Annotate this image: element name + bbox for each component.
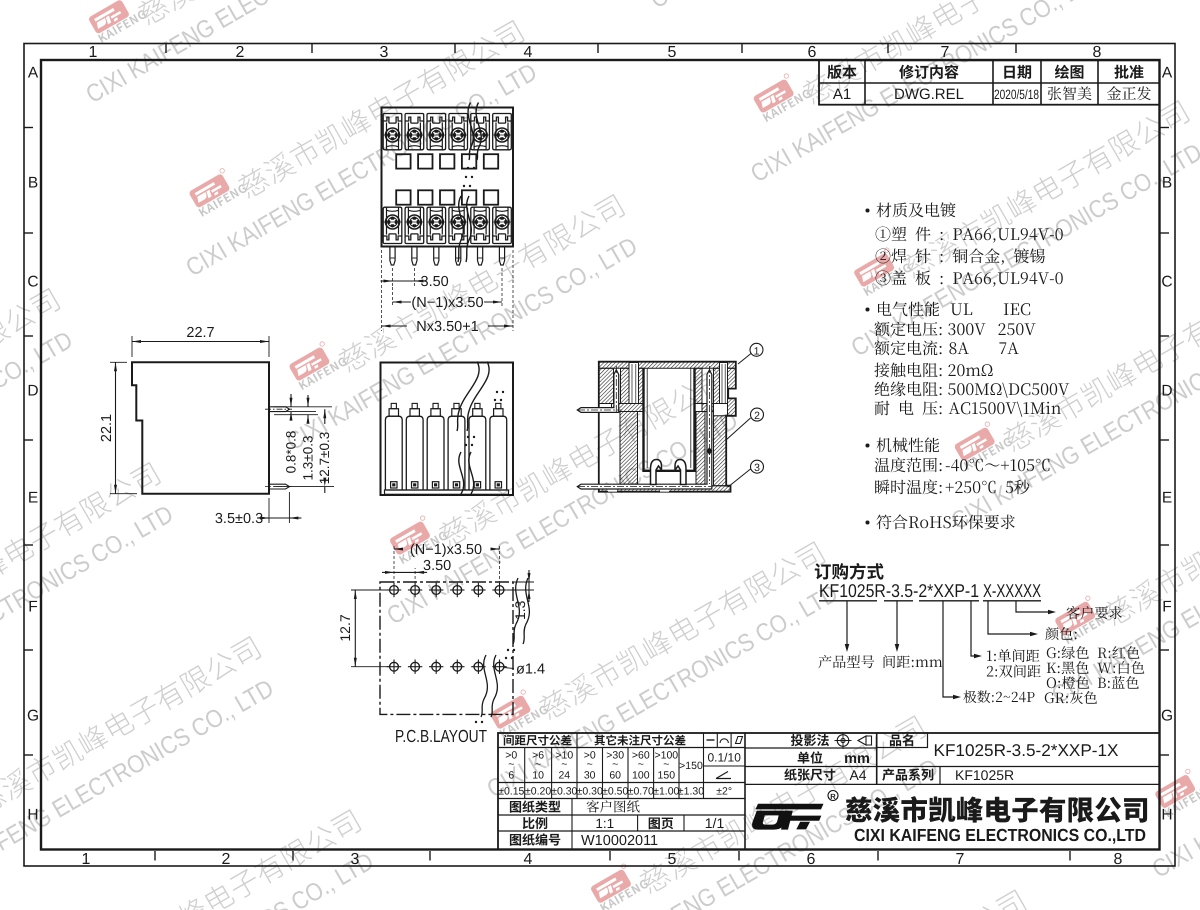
- svg-text:100: 100: [632, 770, 650, 782]
- svg-text:>150: >150: [679, 760, 703, 772]
- svg-text:2: 2: [754, 410, 760, 422]
- svg-text:4: 4: [524, 44, 533, 61]
- svg-text:C: C: [1161, 274, 1172, 291]
- svg-text:E: E: [28, 490, 38, 507]
- svg-text:150: 150: [658, 770, 676, 782]
- svg-text:22.7: 22.7: [186, 325, 214, 341]
- svg-text:F: F: [1162, 599, 1171, 616]
- svg-text:1.3: 1.3: [512, 600, 528, 620]
- svg-text:R: R: [830, 792, 836, 801]
- svg-text:6: 6: [808, 44, 817, 61]
- svg-text:±0.20: ±0.20: [525, 786, 551, 798]
- svg-text:12.7±0.3: 12.7±0.3: [317, 432, 332, 484]
- svg-text:W10002011: W10002011: [581, 833, 658, 849]
- svg-text:A1: A1: [833, 86, 851, 103]
- svg-text:8: 8: [1093, 44, 1102, 61]
- svg-text:4: 4: [524, 851, 533, 868]
- svg-text:KF1025R-3.5-2*XXP-1X: KF1025R-3.5-2*XXP-1X: [934, 741, 1119, 760]
- svg-text:mm: mm: [844, 751, 870, 767]
- svg-text:7: 7: [956, 851, 965, 868]
- svg-text:A: A: [1162, 65, 1173, 82]
- svg-text:ø1.4: ø1.4: [516, 662, 545, 678]
- svg-text:0.1/10: 0.1/10: [708, 751, 742, 765]
- svg-text:8: 8: [1114, 851, 1123, 868]
- svg-text:D: D: [1161, 383, 1172, 400]
- svg-text:P.C.B.LAYOUT: P.C.B.LAYOUT: [395, 726, 487, 746]
- svg-text:6: 6: [508, 770, 514, 782]
- svg-text:±0.50: ±0.50: [602, 786, 628, 798]
- svg-text:E: E: [1162, 490, 1172, 507]
- svg-text:F: F: [28, 599, 37, 616]
- svg-text:DWG.REL: DWG.REL: [894, 86, 964, 103]
- svg-text:1:1: 1:1: [595, 816, 614, 831]
- svg-text:H: H: [1161, 807, 1172, 824]
- svg-text:(N−1)x3.50: (N−1)x3.50: [411, 295, 483, 311]
- svg-text:±0.30: ±0.30: [577, 786, 603, 798]
- svg-text:D: D: [27, 383, 38, 400]
- svg-text:1: 1: [754, 345, 760, 357]
- svg-text:24: 24: [558, 770, 570, 782]
- svg-text:0.8*0.8: 0.8*0.8: [283, 431, 298, 474]
- svg-text:5: 5: [668, 44, 677, 61]
- svg-text:60: 60: [609, 770, 621, 782]
- svg-text:6: 6: [807, 851, 816, 868]
- svg-text:KF1025R: KF1025R: [955, 767, 1014, 783]
- svg-text:±1.30: ±1.30: [678, 786, 704, 798]
- svg-text:KF1025R-3.5-2*XXP-1: KF1025R-3.5-2*XXP-1: [819, 580, 979, 601]
- svg-text:1: 1: [89, 44, 98, 61]
- svg-text:3: 3: [380, 44, 389, 61]
- svg-text:1: 1: [82, 851, 91, 868]
- svg-text:B: B: [1162, 175, 1172, 192]
- svg-text:G: G: [27, 708, 39, 725]
- svg-text:22.1: 22.1: [99, 414, 115, 442]
- svg-text:3.50: 3.50: [421, 274, 449, 290]
- svg-text:30: 30: [584, 770, 596, 782]
- svg-text:A4: A4: [849, 767, 866, 783]
- svg-text:2: 2: [222, 851, 231, 868]
- svg-text:±1.00: ±1.00: [653, 786, 679, 798]
- svg-text:3.5±0.3: 3.5±0.3: [215, 511, 263, 527]
- svg-text:2020/5/18: 2020/5/18: [994, 87, 1039, 102]
- svg-text:1/1: 1/1: [705, 815, 725, 831]
- svg-text:3: 3: [754, 462, 760, 474]
- svg-text:A: A: [28, 65, 39, 82]
- svg-text:±0.70: ±0.70: [628, 786, 654, 798]
- svg-text:Nx3.50+1: Nx3.50+1: [416, 319, 478, 335]
- svg-text:(N−1)x3.50: (N−1)x3.50: [410, 542, 482, 558]
- svg-text:7: 7: [941, 44, 950, 61]
- svg-text:3: 3: [351, 851, 360, 868]
- svg-text:G: G: [1161, 708, 1173, 725]
- svg-text:CIXI KAIFENG ELECTRONICS CO.,L: CIXI KAIFENG ELECTRONICS CO.,LTD: [854, 825, 1146, 845]
- svg-text:1.3±0.3: 1.3±0.3: [300, 436, 315, 481]
- svg-text:5: 5: [668, 851, 677, 868]
- svg-text:C: C: [27, 274, 38, 291]
- svg-text:±2°: ±2°: [716, 786, 732, 798]
- svg-text:3.50: 3.50: [423, 558, 451, 574]
- svg-text:X-XXXXX: X-XXXXX: [983, 580, 1041, 601]
- svg-text:12.7: 12.7: [337, 614, 353, 641]
- svg-text:H: H: [27, 807, 38, 824]
- svg-text:10: 10: [532, 770, 544, 782]
- svg-text:±0.15: ±0.15: [498, 786, 524, 798]
- svg-text:2: 2: [236, 44, 245, 61]
- svg-text:±0.30: ±0.30: [551, 786, 577, 798]
- svg-text:B: B: [28, 175, 38, 192]
